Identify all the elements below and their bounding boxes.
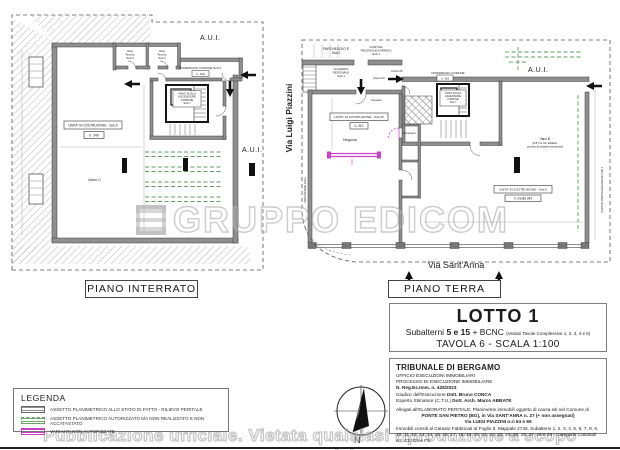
pillar <box>122 158 127 173</box>
lotto-title: LOTTO 1 <box>390 307 606 326</box>
court-title: TRIBUNALE DI BERGAMO <box>396 363 600 372</box>
entrance-arrow-icon <box>586 82 602 90</box>
court-cadastre: Immobili censiti al Catasto Fabbricati a… <box>396 426 600 445</box>
lotto-subalterni: Subalterni 5 e 15 + BCNC (Vedasi Tavole … <box>390 327 606 337</box>
north-compass: N <box>334 385 388 445</box>
entrance-arrow-icon <box>124 80 140 88</box>
lotto-info-box: LOTTO 1 Subalterni 5 e 15 + BCNC (Vedasi… <box>389 303 607 352</box>
legend-item: VARIANTI NON AUTORIZZATE <box>21 428 221 435</box>
storefront <box>308 243 589 249</box>
unit-height-label: h. media 342 <box>514 197 533 201</box>
tech-room-label: Sub.3 <box>126 56 134 60</box>
room-note-label: Vano B <box>540 137 550 141</box>
room-label: Disimpegno <box>402 131 416 135</box>
corridor-label: DISIMPEGNO COMUNE Sub.6 <box>179 66 221 70</box>
caption-piano-terra: PIANO TERRA <box>388 280 501 298</box>
ingresso-label: Ingresso <box>371 98 382 102</box>
aui-label: A.U.I. <box>200 35 221 42</box>
courtyard-label: Sub.1 <box>372 52 380 56</box>
lotto-tavola: TAVOLA 6 - SCALA 1:100 <box>390 339 606 350</box>
unit-height-label: h. 240 <box>89 133 99 137</box>
expert-label: Esperto Stimatore (C.T.U.) <box>396 398 452 403</box>
parking-label: Sub.2 <box>332 51 341 55</box>
expert-name: Dott. Arch. Marco ABBATE <box>452 398 511 403</box>
entrance-arrow-icon <box>357 79 365 95</box>
legend-label: ASSETTO PLANIMETRICO ALLO STATO DI FATTO… <box>50 407 203 412</box>
street-name-south: Via Sant'Anna <box>428 260 485 270</box>
legend-item: ASSETTO PLANIMETRICO ALLO STATO DI FATTO… <box>21 406 221 413</box>
judge-label: Giudice dell'Esecuzione <box>396 392 447 397</box>
lotto-sub-plus: + BCNC <box>472 327 503 337</box>
ground-floor-plan: VANO SCALA ASCENSORE COMUNE Sub.7 <box>284 40 610 287</box>
unit-label: UNITA' IN COSTRUZIONE - Sub.15 <box>334 115 384 119</box>
civic-number-label: Civico 63 <box>373 76 385 80</box>
courtyard-right-label: CORTILE PEDONALE/CARRAIO Sub.1 <box>600 166 604 213</box>
disimpegno-label: DISIMPEGNO COMUNE <box>431 71 464 75</box>
legend-swatch-authorized <box>21 417 45 424</box>
pillar <box>183 158 188 171</box>
lobby-paving <box>404 96 432 124</box>
unauthorized-variant <box>327 128 399 165</box>
basement-plan: VANO SCALA ASCENSORE COMUNE Sub.7 <box>12 15 263 270</box>
legend-title: LEGENDA <box>21 393 221 403</box>
compass-north-label: N <box>354 435 361 445</box>
lotto-sub-prefix: Subalterni <box>406 327 444 337</box>
aui-label: A.U.I. <box>528 67 549 74</box>
street-name-west: Via Luigi Piazzini <box>284 84 294 153</box>
corridor-height-label: h. 240 <box>196 72 205 76</box>
entrance-arrow-icon <box>388 75 404 83</box>
sidewalk-label: MARCIAPIEDE Sub.2 <box>303 177 307 203</box>
legend-label: ASSETTO PLANIMETRICO AUTORIZZATO MA NON … <box>50 416 221 426</box>
unit-label: UNITA' IN COSTRUZIONE - Sub.5 <box>68 124 117 128</box>
basement-stair-core: VANO SCALA ASCENSORE COMUNE Sub.7 <box>166 85 208 135</box>
ground-stair-core: VANO SCALA ASCENSORE COMUNE Sub.7 <box>437 84 469 138</box>
legend-box: LEGENDA ASSETTO PLANIMETRICO ALLO STATO … <box>13 388 229 432</box>
court-info-box: TRIBUNALE DI BERGAMO UFFICIO ESECUZIONI … <box>389 358 607 434</box>
street-steps <box>303 63 316 92</box>
stair-core-label: Sub.7 <box>183 101 191 105</box>
access-label: Sub.1 <box>337 74 345 78</box>
sheet-frame-line <box>0 447 620 449</box>
room-label: Negozio <box>343 138 357 142</box>
unit-label: UNITA' IN COSTRUZIONE - Sub.5 <box>499 188 547 192</box>
aui-label: A.U.I. <box>242 147 263 154</box>
disimpegno-height-label: h. 310 <box>441 76 450 80</box>
unit-height-label: h. 310 <box>355 124 364 128</box>
tech-room-label: Sub.4 <box>158 56 166 60</box>
planimetry-sheet: VANO SCALA ASCENSORE COMUNE Sub.7 <box>0 0 620 450</box>
civic-number-label: Civico 65 <box>391 69 403 73</box>
legend-label: VARIANTI NON AUTORIZZATE <box>50 429 115 434</box>
room-note-label: previsto da progetto autorizzato) <box>527 145 563 148</box>
stair-core-label: Sub.7 <box>450 100 457 104</box>
section-marker <box>249 163 255 176</box>
basement-walls <box>52 43 243 243</box>
lotto-note: (Vedasi Tavole Complessive 1, 2, 3, 4 e … <box>506 331 590 336</box>
legend-swatch-variants <box>21 428 45 435</box>
pillar <box>514 157 520 173</box>
judge-name: Dott. Bruno CONCA <box>447 392 491 397</box>
legend-swatch-survey <box>21 406 45 413</box>
room-label: Vano C <box>88 177 101 182</box>
caption-piano-interrato: PIANO INTERRATO <box>85 280 198 298</box>
lotto-sub-numbers: 5 e 15 <box>446 327 470 337</box>
legend-item: ASSETTO PLANIMETRICO AUTORIZZATO MA NON … <box>21 416 221 426</box>
